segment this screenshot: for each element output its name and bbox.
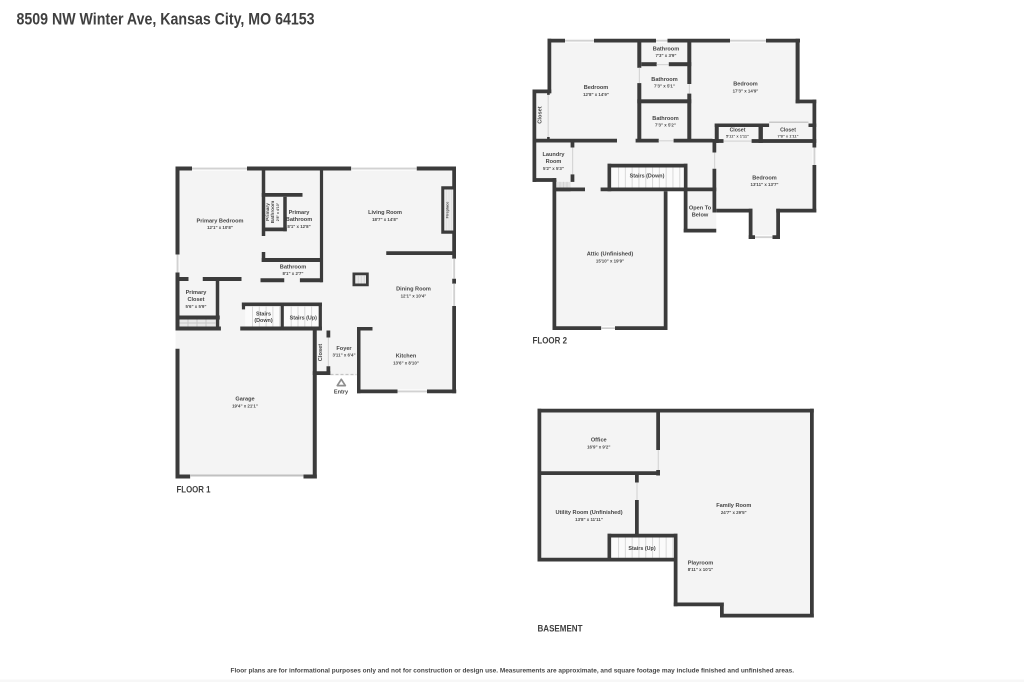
svg-text:Bathroom: Bathroom	[280, 265, 306, 271]
svg-text:7'3" x 3'9": 7'3" x 3'9"	[656, 53, 677, 58]
svg-text:Laundry: Laundry	[542, 152, 565, 158]
svg-text:Stairs (Up): Stairs (Up)	[290, 316, 317, 322]
svg-text:8509 NW Winter Ave, Kansas Cit: 8509 NW Winter Ave, Kansas City, MO 6415…	[17, 11, 315, 29]
svg-text:Utility Room (Unfinished): Utility Room (Unfinished)	[555, 510, 622, 516]
svg-text:Bathroom: Bathroom	[651, 77, 677, 83]
svg-text:7'3" x 5'2": 7'3" x 5'2"	[655, 123, 676, 128]
svg-text:Bathroom: Bathroom	[652, 116, 678, 122]
svg-text:5'11" x 1'11": 5'11" x 1'11"	[726, 134, 749, 139]
svg-text:Playroom: Playroom	[688, 561, 714, 567]
svg-text:Entry: Entry	[334, 390, 349, 396]
svg-text:5'2" x 5'3": 5'2" x 5'3"	[543, 166, 564, 171]
svg-text:18'7" x 14'8": 18'7" x 14'8"	[372, 217, 398, 222]
svg-text:15'10" x 19'9": 15'10" x 19'9"	[596, 259, 624, 264]
svg-text:13'11" x 13'7": 13'11" x 13'7"	[751, 182, 779, 187]
svg-text:12'1" x 10'8": 12'1" x 10'8"	[207, 225, 233, 230]
svg-text:17'3" x 14'9": 17'3" x 14'9"	[733, 89, 759, 94]
svg-text:Room: Room	[546, 159, 562, 165]
svg-text:Primary: Primary	[265, 203, 271, 221]
svg-text:Office: Office	[591, 438, 607, 444]
svg-text:Kitchen: Kitchen	[396, 354, 417, 360]
svg-text:Bedroom: Bedroom	[752, 176, 777, 182]
svg-text:Floor plans are for informatio: Floor plans are for informational purpos…	[231, 668, 795, 675]
svg-text:13'6" x 8'10": 13'6" x 8'10"	[393, 361, 419, 366]
svg-text:8'11" x 10'1": 8'11" x 10'1"	[688, 567, 714, 572]
svg-text:Closet: Closet	[538, 106, 544, 123]
svg-text:FLOOR 2: FLOOR 2	[533, 336, 568, 347]
svg-text:12'1" x 10'4": 12'1" x 10'4"	[401, 294, 427, 299]
svg-text:Dining Room: Dining Room	[396, 287, 431, 293]
svg-text:Foyer: Foyer	[336, 346, 352, 352]
svg-text:Closet: Closet	[318, 344, 324, 361]
svg-text:3'11" x 6'4": 3'11" x 6'4"	[332, 353, 355, 358]
svg-text:Stairs (Up): Stairs (Up)	[628, 546, 655, 552]
svg-text:12'8" x 14'9": 12'8" x 14'9"	[583, 92, 609, 97]
svg-text:19'4" x 21'1": 19'4" x 21'1"	[232, 404, 258, 409]
svg-text:Family Room: Family Room	[716, 503, 751, 509]
svg-text:Below: Below	[692, 213, 709, 219]
svg-text:2'8" x 4'10": 2'8" x 4'10"	[276, 202, 280, 221]
svg-text:(Down): (Down)	[254, 318, 272, 324]
svg-text:7'8" x 1'11": 7'8" x 1'11"	[777, 134, 798, 139]
svg-text:Bathroom: Bathroom	[286, 217, 312, 223]
svg-text:Garage: Garage	[235, 397, 254, 403]
svg-text:8'1" x 2'7": 8'1" x 2'7"	[283, 271, 304, 276]
svg-text:7'3" x 5'1": 7'3" x 5'1"	[654, 84, 675, 89]
svg-text:Primary: Primary	[289, 210, 311, 216]
svg-text:Primary: Primary	[186, 290, 208, 296]
svg-text:BASEMENT: BASEMENT	[538, 624, 583, 635]
svg-text:Bedroom: Bedroom	[584, 85, 609, 91]
svg-text:Open To: Open To	[689, 206, 712, 212]
svg-text:Primary Bedroom: Primary Bedroom	[197, 219, 244, 225]
svg-text:13'8" x 11'11": 13'8" x 11'11"	[575, 517, 603, 522]
svg-text:16'9" x 9'2": 16'9" x 9'2"	[587, 445, 610, 450]
svg-text:24'7" x 29'5": 24'7" x 29'5"	[721, 510, 747, 515]
svg-text:Attic (Unfinished): Attic (Unfinished)	[587, 252, 634, 258]
svg-text:Bathroom: Bathroom	[653, 47, 679, 53]
svg-text:FLOOR 1: FLOOR 1	[177, 485, 212, 496]
svg-text:Closet: Closet	[187, 297, 204, 303]
svg-text:Stairs (Down): Stairs (Down)	[630, 174, 665, 180]
svg-text:Stairs: Stairs	[256, 312, 271, 318]
svg-text:5'6" x 5'9": 5'6" x 5'9"	[186, 304, 207, 309]
svg-text:Living Room: Living Room	[368, 210, 402, 216]
svg-text:Bedroom: Bedroom	[733, 82, 758, 88]
svg-text:8'1" x 12'8": 8'1" x 12'8"	[287, 224, 310, 229]
svg-text:Fireplace: Fireplace	[446, 202, 450, 219]
